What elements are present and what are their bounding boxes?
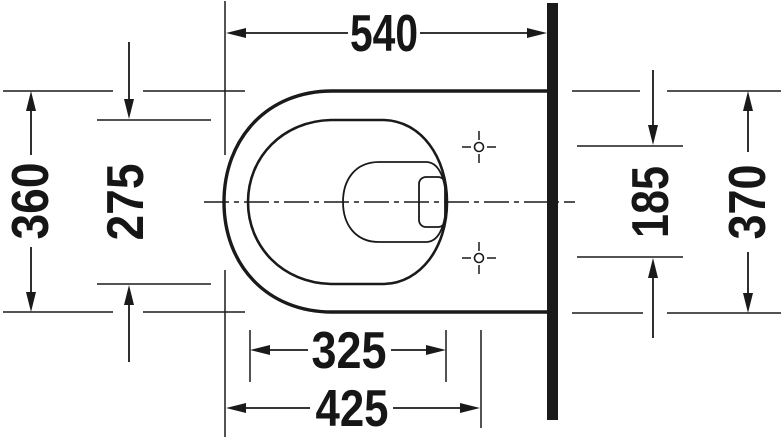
dim-top: 540 [226, 5, 547, 63]
wall-line [547, 3, 558, 420]
dim-bottom-outer-label: 425 [316, 380, 389, 438]
arrow-down-icon [743, 293, 753, 313]
arrow-right-icon [527, 28, 547, 38]
arrow-up-icon [648, 258, 658, 278]
arrow-left-icon [250, 345, 270, 355]
arrow-left-icon [226, 403, 246, 413]
dim-bottom-inner: 325 [250, 322, 446, 380]
dim-left-inner-label: 275 [97, 164, 155, 241]
arrow-up-icon [124, 285, 134, 305]
arrow-down-icon [26, 292, 36, 312]
dim-right-inner-label: 185 [622, 166, 680, 238]
arrow-up-icon [743, 91, 753, 111]
arrow-right-icon [460, 403, 480, 413]
dim-bottom-outer: 425 [226, 380, 480, 438]
toilet-plan-view-svg: 540 360 275 185 370 [0, 0, 782, 441]
dim-right-outer: 370 [719, 91, 777, 313]
dim-right-inner: 185 [622, 70, 680, 338]
arrow-down-icon [648, 125, 658, 145]
dim-left-outer-label: 360 [2, 163, 60, 240]
dim-left-inner: 275 [97, 42, 155, 362]
arrow-down-icon [124, 99, 134, 119]
dim-bottom-inner-label: 325 [312, 322, 387, 380]
dim-left-outer: 360 [2, 91, 60, 312]
technical-drawing: 540 360 275 185 370 [0, 0, 782, 441]
mounting-hole-top [462, 131, 496, 163]
mounting-hole-bottom [462, 242, 496, 274]
arrow-right-icon [426, 345, 446, 355]
dim-right-outer-label: 370 [719, 165, 777, 240]
arrow-left-icon [226, 28, 246, 38]
arrow-up-icon [26, 91, 36, 111]
dim-top-label: 540 [350, 5, 418, 63]
